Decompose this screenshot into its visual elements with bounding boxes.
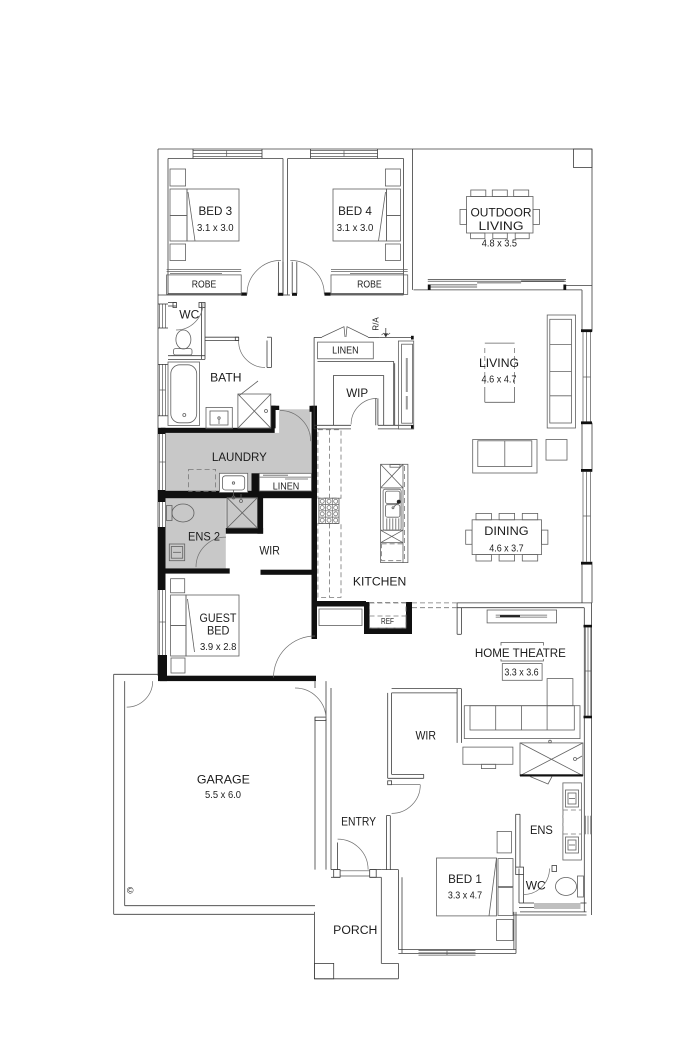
svg-text:HOME THEATRE: HOME THEATRE bbox=[475, 646, 566, 660]
svg-text:BED 3: BED 3 bbox=[198, 204, 232, 218]
svg-text:3.1 x 3.0: 3.1 x 3.0 bbox=[197, 223, 234, 234]
svg-text:WC: WC bbox=[526, 879, 546, 893]
svg-text:WC: WC bbox=[179, 307, 199, 321]
svg-text:PORCH: PORCH bbox=[333, 923, 377, 937]
svg-text:BED: BED bbox=[207, 624, 230, 638]
svg-text:OUTDOOR: OUTDOOR bbox=[471, 206, 532, 220]
svg-text:WIR: WIR bbox=[259, 544, 280, 558]
svg-text:4.6 x 4.7: 4.6 x 4.7 bbox=[482, 375, 517, 386]
svg-text:BED 4: BED 4 bbox=[338, 204, 372, 218]
svg-text:WIR: WIR bbox=[415, 729, 436, 743]
svg-text:BATH: BATH bbox=[210, 371, 241, 385]
svg-text:BED 1: BED 1 bbox=[448, 872, 482, 886]
svg-text:4.8 x 3.5: 4.8 x 3.5 bbox=[482, 238, 517, 249]
svg-text:3.3 x 4.7: 3.3 x 4.7 bbox=[448, 891, 483, 902]
svg-text:3.3 x 3.6: 3.3 x 3.6 bbox=[504, 668, 539, 679]
svg-text:DINING: DINING bbox=[484, 524, 528, 538]
svg-text:©: © bbox=[127, 885, 134, 895]
svg-text:5.5 x 6.0: 5.5 x 6.0 bbox=[205, 790, 241, 801]
svg-text:LINEN: LINEN bbox=[273, 482, 300, 493]
svg-text:3.1 x 3.0: 3.1 x 3.0 bbox=[337, 223, 374, 234]
svg-text:WIP: WIP bbox=[346, 386, 368, 400]
svg-text:ENTRY: ENTRY bbox=[341, 815, 376, 829]
svg-text:ENS 2: ENS 2 bbox=[188, 530, 220, 544]
svg-text:ROBE: ROBE bbox=[357, 280, 382, 291]
svg-text:LINEN: LINEN bbox=[332, 346, 359, 357]
svg-text:LIVING: LIVING bbox=[479, 356, 519, 370]
svg-text:REF: REF bbox=[381, 616, 394, 626]
svg-text:R/A: R/A bbox=[372, 317, 381, 331]
svg-text:4.6 x 3.7: 4.6 x 3.7 bbox=[489, 544, 524, 555]
svg-text:LAUNDRY: LAUNDRY bbox=[212, 450, 267, 464]
svg-text:3.9 x 2.8: 3.9 x 2.8 bbox=[200, 642, 237, 653]
svg-text:ROBE: ROBE bbox=[192, 280, 217, 291]
svg-text:ENS: ENS bbox=[530, 823, 553, 837]
svg-text:LIVING: LIVING bbox=[479, 219, 524, 233]
svg-text:GARAGE: GARAGE bbox=[197, 773, 250, 787]
svg-text:KITCHEN: KITCHEN bbox=[353, 575, 406, 589]
